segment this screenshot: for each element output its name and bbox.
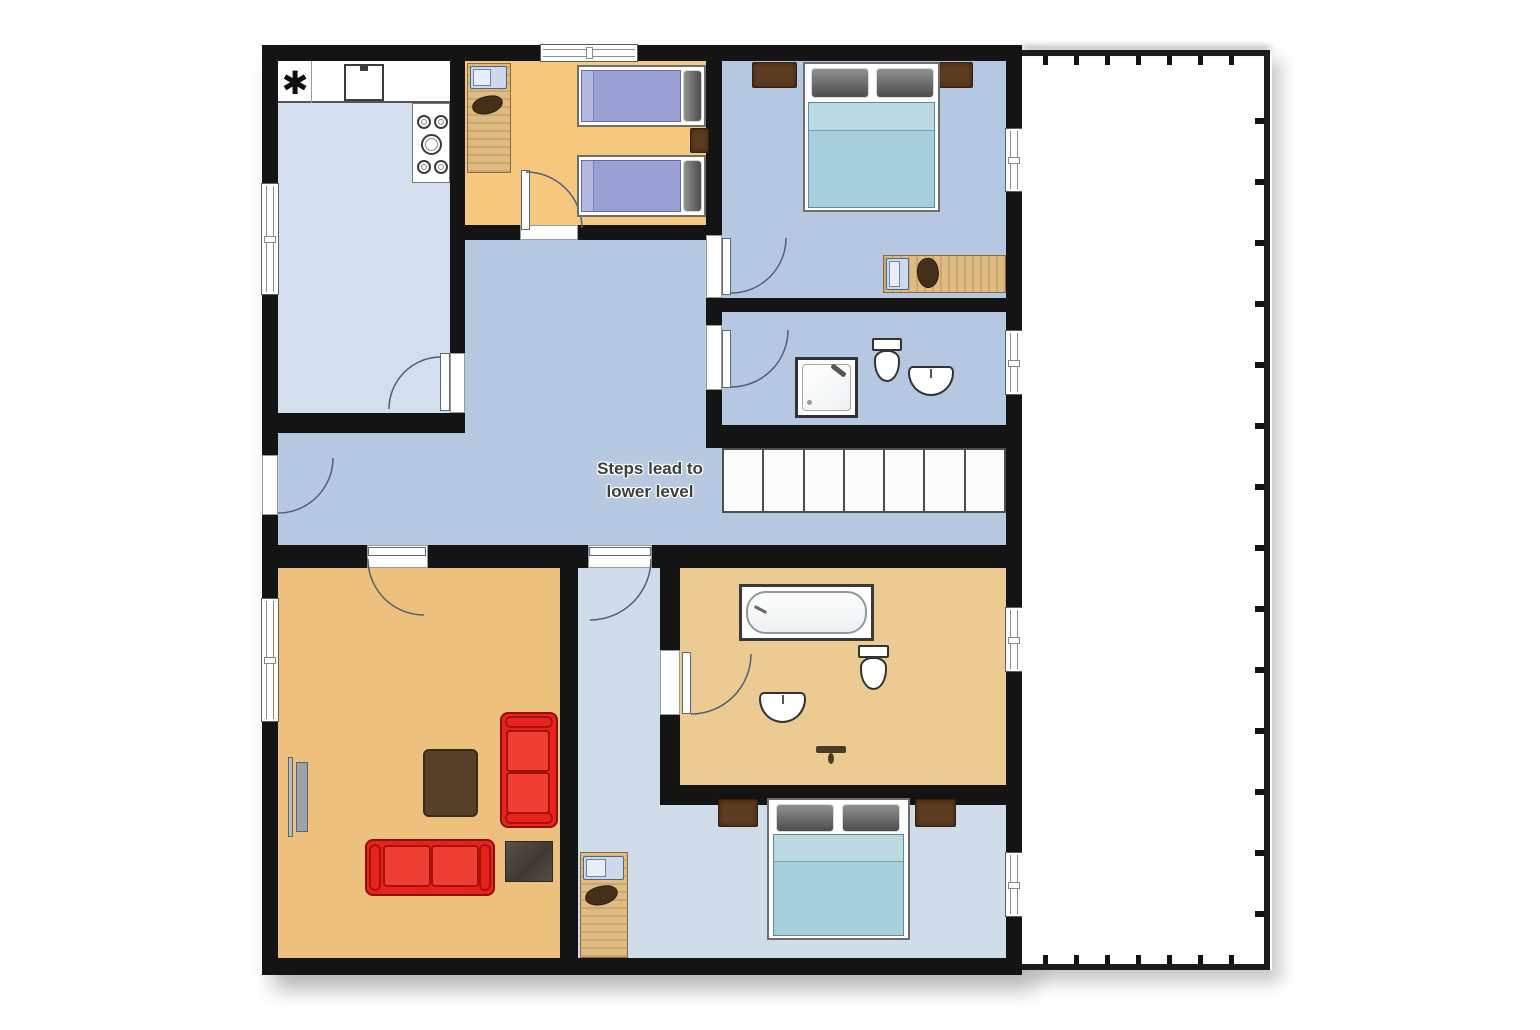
balcony-railing-right [1264,50,1270,970]
twin-bedroom-nightstand [690,128,709,153]
lower-hallway-door-leaf [589,547,651,556]
stove [412,103,450,183]
living-room-window [261,598,279,722]
twin-bed-2 [577,155,706,217]
lower-nightstand-left [718,799,758,827]
shower [795,357,858,418]
wall-hall-south-b [428,545,560,568]
wall-kitchen-east-b [450,413,465,433]
stove-burner [417,115,431,129]
page: { "plan": { "note": { "line1": "Steps le… [0,0,1540,1030]
hallway-floor-west [278,433,465,545]
bathtub [739,584,874,641]
balcony-railing-bottom [1022,964,1270,970]
wall-kitchen-east-a [450,61,465,353]
wall-living-east [560,545,578,958]
sofa-armrest [369,844,381,891]
master-nightstand-right [937,62,973,88]
wall-hall-south-c [578,545,588,568]
kitchen-door-gap [450,353,465,413]
stair-step [964,448,1006,513]
sofa-armrest [505,716,553,728]
floor-plan: ✱ Steps lead to [0,0,1540,1030]
twin-bedroom-door-leaf [521,170,530,230]
wall-outer-top [262,45,1022,61]
stove-burner [417,160,431,174]
balcony-railing-posts-top [1043,56,1255,65]
rug [505,841,553,882]
wall-hall-master-c [706,390,722,448]
sofa-cushion [506,730,550,772]
living-room-door-leaf [368,547,426,556]
master-bedroom-window [1005,128,1023,192]
upper-bathroom-floor [722,312,1006,425]
stove-burner [434,160,448,174]
lower-bed [767,798,910,940]
stairs-note-line2: lower level [565,480,735,503]
stair-step [923,448,965,513]
wall-hall-south-d [652,545,1006,568]
stair-step [883,448,925,513]
tv-panel [288,757,293,837]
wall-hall-master-b [706,298,722,325]
twin-bed-2-pillow [683,160,702,212]
twin-bedroom-desk [467,63,511,173]
balcony-railing-posts-right [1255,118,1264,928]
lower-bathroom-door-gap [660,650,680,715]
wall-lowerhall-bath-a [660,568,680,650]
lower-hallway-desk [580,852,628,958]
kitchen-appliance-box: ✱ [278,61,312,103]
laptop-icon [886,258,909,290]
upper-bathroom-door-gap [706,325,722,390]
entrance-door-gap [262,455,278,515]
master-bed [803,62,940,212]
wall-bath-stairs-divider [722,425,1006,448]
wall-kitchen-south [278,413,450,433]
twin-bed-1-pillow [683,70,702,122]
master-bedroom-door-gap [706,235,722,298]
appliance-symbol: ✱ [278,65,312,101]
balcony-floor [1022,48,1272,970]
stair-step [803,448,845,513]
twin-bed-1-blanket [581,70,681,122]
twin-bed-2-blanket [581,160,681,212]
upper-bathroom-window [1005,330,1023,395]
master-bedroom-door-leaf [722,238,731,295]
balcony-railing-posts-bottom [1043,955,1255,964]
master-bed-pillow-left [811,68,869,98]
sofa-armrest [479,844,491,891]
towel-rail-icon [816,746,846,753]
lower-bedroom-window [1005,852,1023,917]
staircase [722,448,1006,513]
twin-bed-1 [577,65,706,127]
coffee-table [423,749,478,817]
laptop-icon [470,66,507,89]
sofa-cushion [431,845,479,887]
towel-rail-stem [828,753,834,764]
lower-bed-pillow-left [776,804,834,832]
tv [296,762,308,832]
kitchen-window [261,183,279,295]
wall-lowerhall-bath-b [660,715,680,785]
kitchen-door-leaf [440,353,450,411]
master-bed-blanket [808,102,935,208]
sofa-cushion [383,845,431,887]
master-nightstand-left [752,62,797,88]
laptop-icon [583,856,624,880]
lower-bed-pillow-right [842,804,900,832]
kitchen-sink [344,64,384,101]
sofa-vertical [500,712,558,828]
master-bed-pillow-right [876,68,934,98]
sofa-horizontal [365,839,495,896]
stair-step [762,448,804,513]
shower-drain [807,400,812,405]
wall-outer-bottom [262,958,1022,975]
twin-bedroom-window [540,44,638,62]
master-bedroom-desk [883,255,1006,293]
stairs-note: Steps lead to lower level [565,457,735,503]
stair-step [843,448,885,513]
wall-twin-south-b [578,225,706,240]
wall-twin-south-a [465,225,520,240]
lower-nightstand-right [915,799,956,827]
lower-bed-blanket [773,834,904,936]
wall-hall-south-a [278,545,367,568]
stairs-note-line1: Steps lead to [565,457,735,480]
lower-bathroom-window [1005,607,1023,672]
lower-bathroom-door-leaf [682,652,691,714]
upper-bathroom-door-leaf [722,330,731,388]
wall-master-bath-divider [722,298,1006,312]
stove-burner [434,115,448,129]
sofa-cushion [506,772,550,814]
stove-burner [421,134,442,155]
